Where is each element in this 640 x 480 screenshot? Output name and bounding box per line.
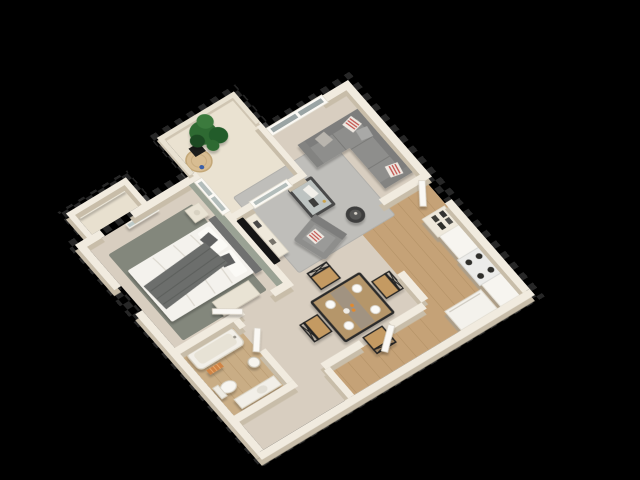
floorplan-canvas	[0, 0, 640, 480]
bedroom-door	[212, 309, 242, 315]
front-door	[419, 181, 427, 207]
bathroom-door	[253, 328, 261, 352]
render-stage	[0, 0, 640, 480]
